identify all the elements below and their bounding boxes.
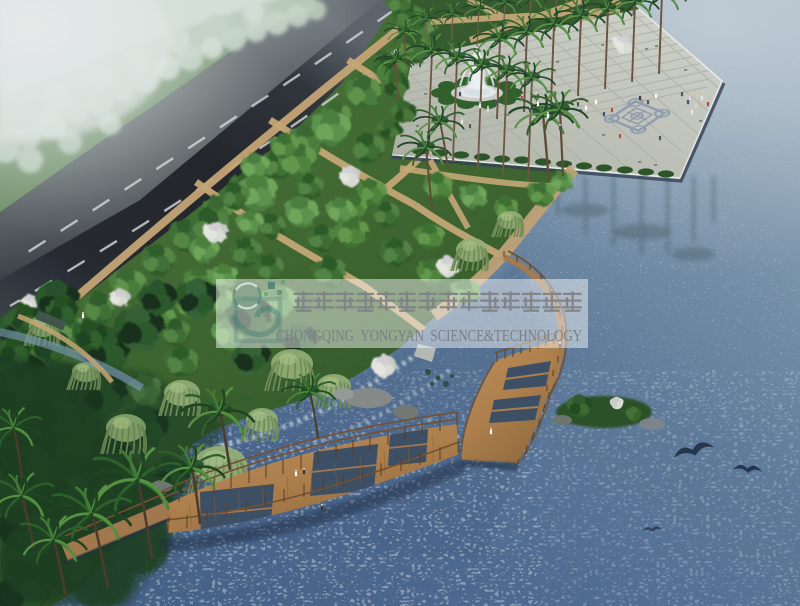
svg-text:CHONGQING YONGYAN SCIENCE&TE: CHONGQING YONGYAN SCIENCE&TECHNOLOGY <box>276 326 582 345</box>
